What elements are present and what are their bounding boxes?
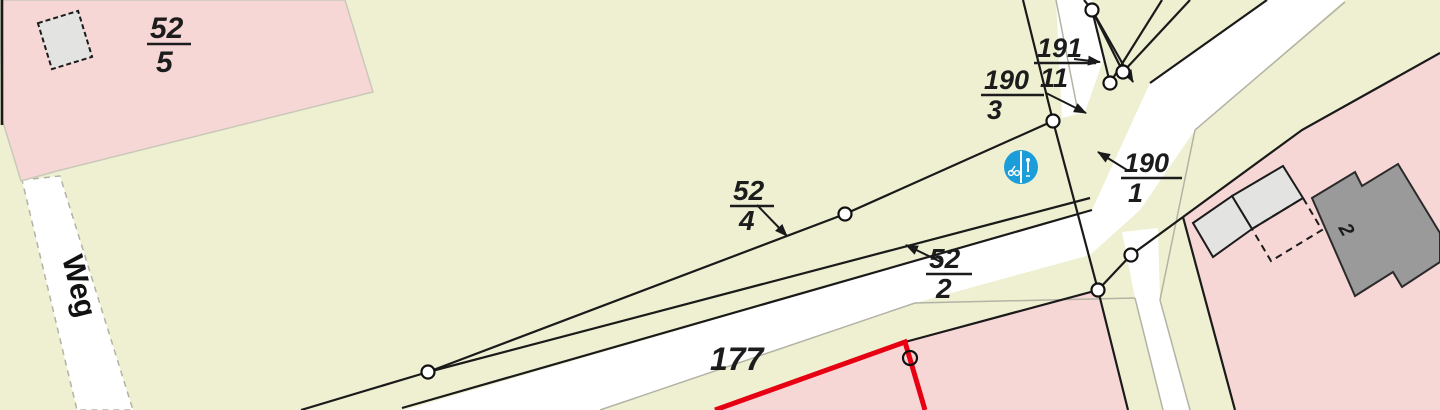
boundary-point[interactable]	[839, 208, 852, 221]
boundary-point[interactable]	[1125, 249, 1138, 262]
label-191-11-den: 11	[1040, 63, 1068, 93]
label-190-3-den: 3	[987, 95, 1002, 125]
boundary-point[interactable]	[1047, 115, 1060, 128]
label-52-4-num: 52	[733, 175, 765, 206]
label-190-1-num: 190	[1124, 148, 1169, 178]
label-190-1-den: 1	[1128, 178, 1143, 208]
label-52-2-num: 52	[929, 243, 961, 274]
pedestrian-bike-sign-icon[interactable]	[1004, 150, 1038, 184]
boundary-point[interactable]	[422, 366, 435, 379]
boundary-point[interactable]	[1086, 4, 1099, 17]
map-canvas[interactable]: 52 5 52 4 52 2 190 3 191 11 190 1	[0, 0, 1440, 410]
boundary-point[interactable]	[1092, 284, 1105, 297]
label-52-4-den: 4	[738, 205, 755, 236]
label-52-2-den: 2	[935, 273, 952, 304]
label-190-3-num: 190	[984, 65, 1029, 95]
label-52-5-num: 52	[150, 12, 184, 45]
cadastral-map[interactable]: 52 5 52 4 52 2 190 3 191 11 190 1	[0, 0, 1440, 410]
parcel-label-177: 177	[710, 341, 766, 377]
boundary-point[interactable]	[1104, 77, 1117, 90]
label-52-5-den: 5	[156, 46, 174, 79]
label-191-11-num: 191	[1037, 33, 1082, 63]
boundary-point[interactable]	[1117, 66, 1130, 79]
